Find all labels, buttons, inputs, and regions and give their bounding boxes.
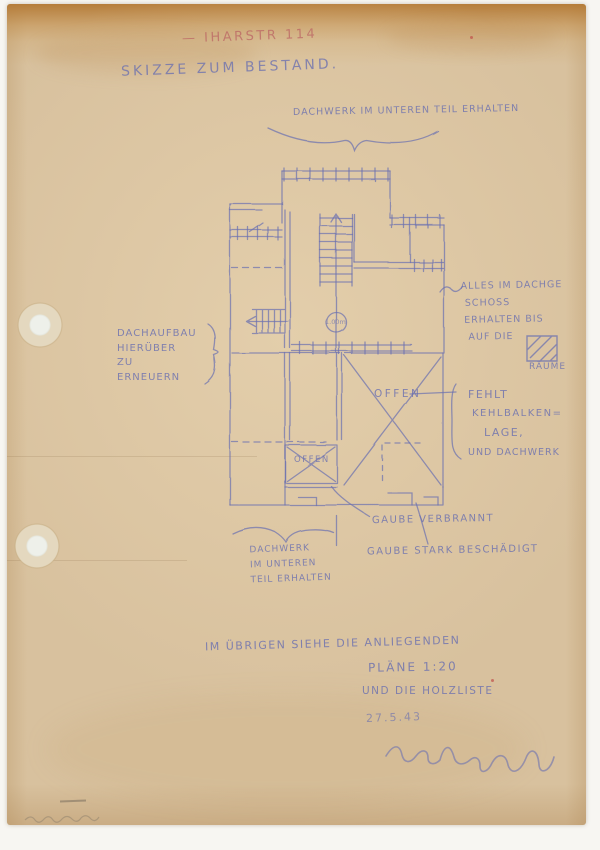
cross-large-offen — [344, 355, 441, 485]
brace-top — [268, 128, 438, 150]
fehlt-line: LAGE, — [484, 423, 562, 442]
date-label: 27.5.43 — [366, 710, 422, 725]
red-speck — [491, 679, 494, 682]
note-right: ALLES IM DACHGE SCHOSS ERHALTEN BIS AUF … — [460, 276, 563, 346]
wall-lower-central — [337, 353, 342, 440]
wall-right-step — [390, 218, 444, 225]
signature — [386, 747, 554, 772]
note-bottom-left: DACHWERK IM UNTEREN TEIL ERHALTEN — [249, 541, 332, 589]
window-ticks-mid — [300, 342, 404, 354]
wall-central — [285, 210, 290, 505]
brace-fehlt — [452, 384, 461, 459]
brace-left — [205, 324, 219, 384]
wall-bottom — [230, 487, 443, 505]
note-left-line: ERNEUERN — [117, 371, 197, 386]
window-ticks-right-step — [392, 215, 440, 228]
fehlt-line: FEHLT — [468, 385, 562, 404]
note-left-line: DACHAUFBAU — [117, 327, 197, 342]
note-left-line: ZU — [117, 356, 197, 371]
note-bottom-line: TEIL ERHALTEN — [250, 571, 332, 589]
note-left-line: HIERÜBER — [117, 342, 197, 357]
staircase — [320, 214, 352, 352]
raeume-label: RÄUME — [529, 362, 566, 372]
offen-label-large: OFFEN — [374, 388, 421, 400]
window-ticks-right-room — [414, 259, 441, 271]
mini-stair — [246, 309, 288, 333]
window-ticks-leftwing — [238, 227, 278, 240]
gaube-verbrannt-label: GAUBE VERBRANNT — [372, 513, 494, 526]
footer-line3: UND DIE HOLZLISTE — [362, 685, 493, 697]
note-right-line: ERHALTEN BIS — [464, 310, 563, 329]
small-offen-box — [285, 445, 337, 487]
footer-line2: PLÄNE 1:20 — [368, 659, 458, 675]
note-fehlt: FEHLT KEHLBALKEN= LAGE, — [468, 385, 562, 442]
wall-leftwing-top — [230, 204, 282, 210]
und-dachwerk-label: UND DACHWERK — [468, 447, 560, 458]
wall-right-room — [354, 262, 443, 268]
note-left: DACHAUFBAU HIERÜBER ZU ERNEUERN — [117, 327, 197, 385]
note-right-line: AUF DIE — [468, 327, 563, 346]
stair-circle-label: 1.00m — [325, 318, 346, 326]
red-speck — [470, 36, 473, 39]
scanned-document-page: { "colors": { "paper": "#d8c19e", "paper… — [0, 0, 600, 850]
note-right-line: ALLES IM DACHGE — [460, 276, 562, 295]
note-right-line: SCHOSS — [465, 293, 563, 312]
bottom-bumps — [298, 493, 438, 505]
fehlt-line: KEHLBALKEN= — [472, 404, 562, 423]
offen-label-small: OFFEN — [294, 455, 330, 465]
leader-gaube1 — [331, 486, 370, 517]
illegible-pencil-note — [25, 816, 99, 823]
wall-hall-right — [354, 214, 410, 262]
